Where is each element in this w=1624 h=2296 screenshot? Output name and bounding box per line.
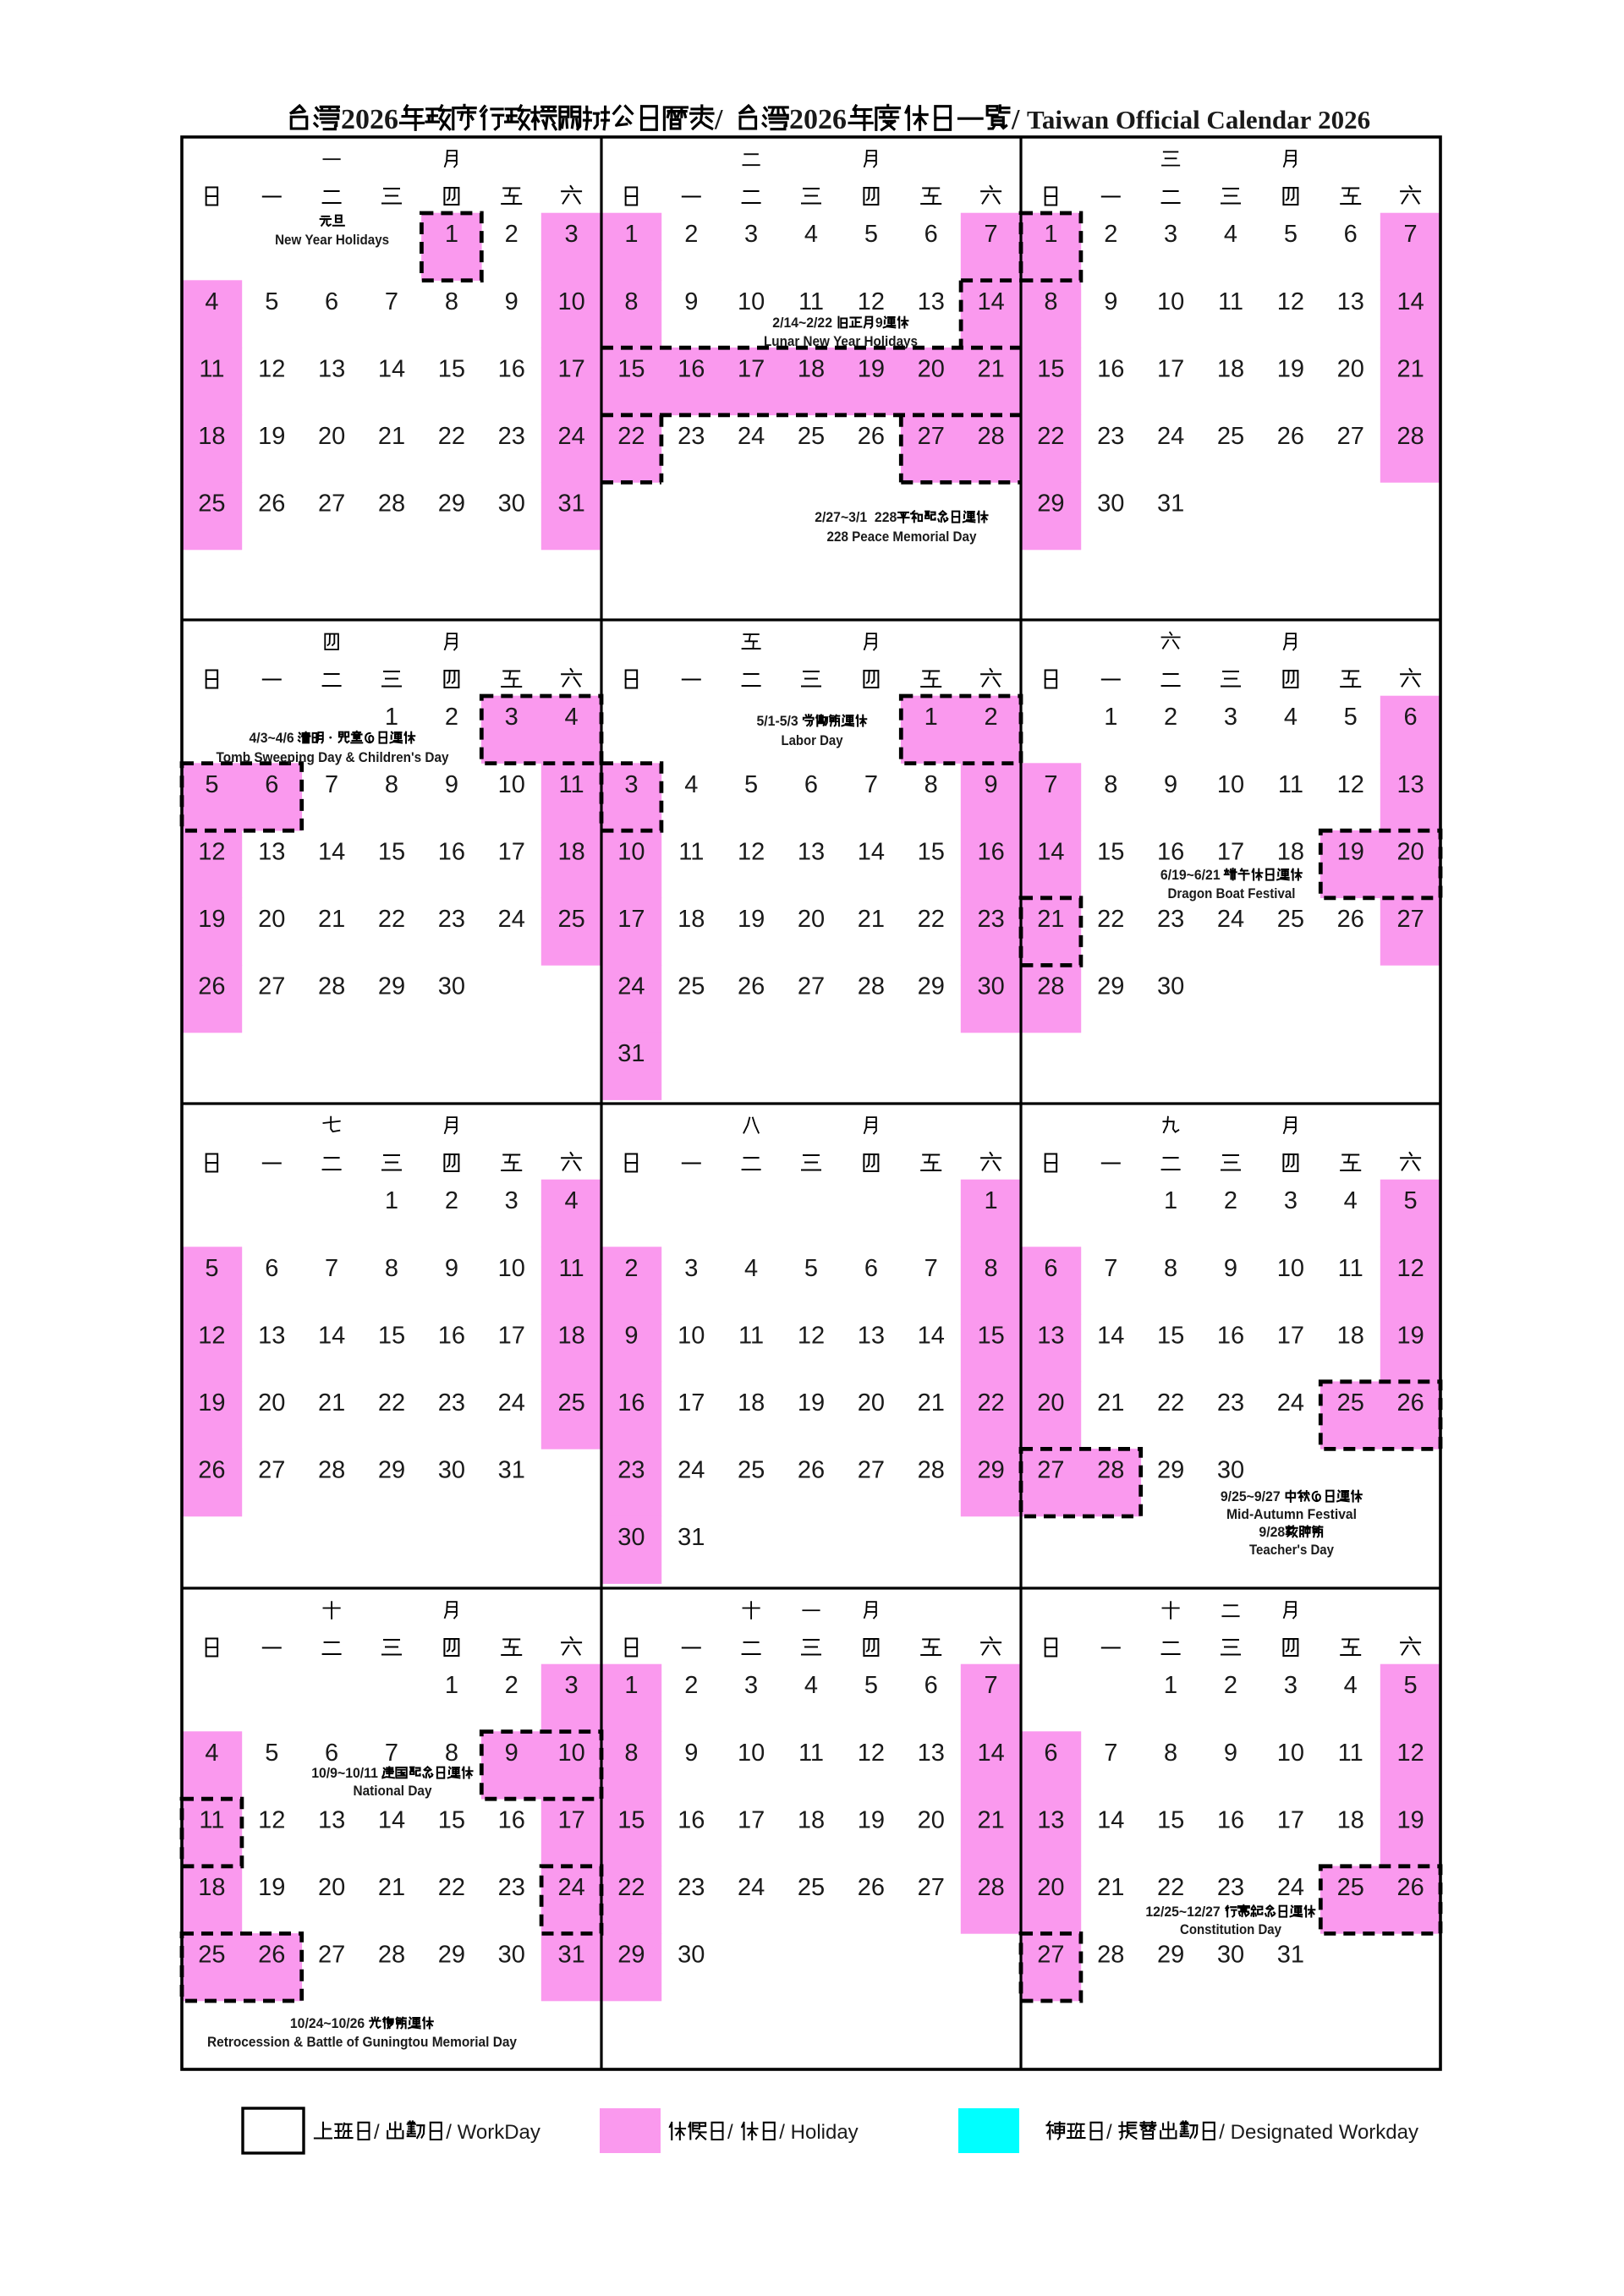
svg-text:28: 28 bbox=[318, 1457, 345, 1484]
svg-text:31: 31 bbox=[1157, 490, 1184, 518]
svg-text:Dragon Boat Festival: Dragon Boat Festival bbox=[1168, 885, 1296, 901]
svg-text:28: 28 bbox=[378, 1942, 405, 1969]
svg-text:/ Holiday: / Holiday bbox=[779, 2121, 858, 2144]
svg-text:24: 24 bbox=[738, 1874, 765, 1901]
svg-text:9: 9 bbox=[624, 1322, 638, 1349]
svg-text:20: 20 bbox=[318, 1874, 345, 1901]
svg-text:17: 17 bbox=[557, 1806, 584, 1833]
svg-text:11: 11 bbox=[738, 1322, 764, 1349]
svg-text:6: 6 bbox=[1344, 221, 1358, 248]
svg-text:13: 13 bbox=[1396, 771, 1424, 798]
svg-text:30: 30 bbox=[438, 1457, 465, 1484]
svg-text:7: 7 bbox=[1104, 1255, 1117, 1282]
svg-text:31: 31 bbox=[557, 490, 584, 518]
svg-text:15: 15 bbox=[378, 1322, 405, 1349]
svg-text:3: 3 bbox=[744, 221, 758, 248]
svg-text:22: 22 bbox=[438, 423, 465, 450]
svg-text:26: 26 bbox=[1277, 423, 1304, 450]
svg-text:2: 2 bbox=[1224, 1672, 1237, 1699]
svg-text:24: 24 bbox=[1277, 1874, 1304, 1901]
svg-text:6/19~6/21: 6/19~6/21 bbox=[1160, 867, 1224, 883]
svg-text:27: 27 bbox=[1337, 423, 1364, 450]
svg-text:25: 25 bbox=[1337, 1389, 1364, 1417]
svg-text:19: 19 bbox=[258, 1874, 285, 1901]
svg-text:25: 25 bbox=[678, 973, 705, 1000]
svg-text:22: 22 bbox=[378, 1389, 405, 1417]
svg-text:12: 12 bbox=[198, 1322, 225, 1349]
svg-text:2: 2 bbox=[505, 221, 518, 248]
svg-text:24: 24 bbox=[1217, 906, 1244, 933]
svg-text:28: 28 bbox=[918, 1457, 945, 1484]
svg-text:20: 20 bbox=[798, 906, 825, 933]
svg-text:2: 2 bbox=[1104, 221, 1117, 248]
svg-text:11: 11 bbox=[199, 1806, 224, 1833]
svg-text:11: 11 bbox=[1218, 288, 1243, 315]
svg-text:17: 17 bbox=[678, 1389, 705, 1417]
svg-text:2: 2 bbox=[684, 1672, 698, 1699]
svg-text:22: 22 bbox=[1097, 906, 1124, 933]
svg-text:9: 9 bbox=[505, 288, 518, 315]
svg-text:/ Designated Workday: / Designated Workday bbox=[1219, 2121, 1418, 2144]
svg-text:22: 22 bbox=[438, 1874, 465, 1901]
svg-text:18: 18 bbox=[1277, 838, 1304, 865]
svg-text:4/3~4/6: 4/3~4/6 bbox=[250, 730, 299, 746]
svg-text:7: 7 bbox=[985, 1672, 998, 1699]
svg-text:21: 21 bbox=[977, 1806, 1004, 1833]
svg-text:26: 26 bbox=[1396, 1389, 1424, 1417]
svg-text:20: 20 bbox=[1337, 355, 1364, 382]
svg-text:6: 6 bbox=[325, 1740, 338, 1767]
svg-text:27: 27 bbox=[858, 1457, 885, 1484]
svg-text:Mid-Autumn Festival: Mid-Autumn Festival bbox=[1226, 1506, 1357, 1522]
svg-text:7: 7 bbox=[985, 221, 998, 248]
svg-text:27: 27 bbox=[1396, 906, 1424, 933]
svg-text:25: 25 bbox=[198, 490, 225, 518]
svg-text:23: 23 bbox=[1097, 423, 1124, 450]
svg-text:21: 21 bbox=[858, 906, 885, 933]
svg-text:26: 26 bbox=[798, 1457, 825, 1484]
svg-text:14: 14 bbox=[378, 355, 405, 382]
svg-text:18: 18 bbox=[678, 906, 705, 933]
svg-text:2: 2 bbox=[624, 1255, 638, 1282]
svg-text:25: 25 bbox=[557, 1389, 584, 1417]
svg-text:9: 9 bbox=[684, 1740, 698, 1767]
svg-text:18: 18 bbox=[198, 1874, 225, 1901]
svg-text:6: 6 bbox=[265, 1255, 278, 1282]
svg-text:29: 29 bbox=[438, 1942, 465, 1969]
svg-text:Labor Day: Labor Day bbox=[782, 732, 843, 748]
svg-text:19: 19 bbox=[258, 423, 285, 450]
svg-text:12: 12 bbox=[1396, 1740, 1424, 1767]
svg-text:5: 5 bbox=[744, 771, 758, 798]
svg-text:8: 8 bbox=[985, 1255, 998, 1282]
svg-text:7: 7 bbox=[325, 771, 338, 798]
svg-text:30: 30 bbox=[1217, 1942, 1244, 1969]
svg-text:10: 10 bbox=[738, 288, 765, 315]
svg-text:26: 26 bbox=[1396, 1874, 1424, 1901]
svg-text:29: 29 bbox=[378, 1457, 405, 1484]
svg-text:6: 6 bbox=[265, 771, 278, 798]
svg-text:12: 12 bbox=[1277, 288, 1304, 315]
svg-text:14: 14 bbox=[1097, 1806, 1124, 1833]
svg-text:5: 5 bbox=[205, 1255, 218, 1282]
svg-text:14: 14 bbox=[918, 1322, 945, 1349]
svg-text:3: 3 bbox=[1284, 1672, 1298, 1699]
svg-text:24: 24 bbox=[1157, 423, 1184, 450]
svg-text:15: 15 bbox=[378, 838, 405, 865]
svg-text:31: 31 bbox=[557, 1942, 584, 1969]
svg-text:4: 4 bbox=[804, 1672, 818, 1699]
svg-text:16: 16 bbox=[438, 838, 465, 865]
svg-text:8: 8 bbox=[445, 288, 458, 315]
svg-text:31: 31 bbox=[1277, 1942, 1304, 1969]
svg-text:11: 11 bbox=[559, 1255, 584, 1282]
svg-text:12: 12 bbox=[858, 1740, 885, 1767]
svg-text:17: 17 bbox=[1277, 1806, 1304, 1833]
svg-text:18: 18 bbox=[738, 1389, 765, 1417]
svg-text:27: 27 bbox=[918, 1874, 945, 1901]
svg-text:1: 1 bbox=[924, 704, 938, 731]
svg-text:1: 1 bbox=[1164, 1187, 1177, 1214]
svg-text:27: 27 bbox=[318, 490, 345, 518]
svg-text:228 Peace Memorial Day: 228 Peace Memorial Day bbox=[827, 529, 977, 545]
svg-text:13: 13 bbox=[858, 1322, 885, 1349]
svg-text:17: 17 bbox=[498, 1322, 525, 1349]
svg-text:24: 24 bbox=[1277, 1389, 1304, 1417]
svg-text:30: 30 bbox=[1157, 973, 1184, 1000]
svg-text:10: 10 bbox=[617, 838, 645, 865]
svg-text:18: 18 bbox=[1337, 1322, 1364, 1349]
svg-text:8: 8 bbox=[1044, 288, 1057, 315]
svg-text:/: / bbox=[1011, 104, 1020, 135]
svg-text:23: 23 bbox=[1217, 1874, 1244, 1901]
svg-text:18: 18 bbox=[198, 423, 225, 450]
svg-text:12: 12 bbox=[198, 838, 225, 865]
svg-text:2: 2 bbox=[445, 704, 458, 731]
svg-text:National Day: National Day bbox=[354, 1783, 432, 1799]
svg-text:28: 28 bbox=[378, 490, 405, 518]
svg-text:27: 27 bbox=[798, 973, 825, 1000]
svg-text:28: 28 bbox=[318, 973, 345, 1000]
svg-text:20: 20 bbox=[918, 1806, 945, 1833]
svg-text:6: 6 bbox=[1044, 1740, 1057, 1767]
svg-text:20: 20 bbox=[1037, 1389, 1064, 1417]
svg-text:31: 31 bbox=[678, 1524, 705, 1551]
svg-text:/: / bbox=[374, 2121, 385, 2144]
svg-text:13: 13 bbox=[918, 288, 945, 315]
svg-text:16: 16 bbox=[678, 355, 705, 382]
svg-text:1: 1 bbox=[385, 704, 398, 731]
svg-text:26: 26 bbox=[858, 423, 885, 450]
svg-text:1: 1 bbox=[624, 221, 638, 248]
svg-text:9: 9 bbox=[1224, 1740, 1237, 1767]
svg-text:13: 13 bbox=[318, 355, 345, 382]
svg-text:9: 9 bbox=[1164, 771, 1177, 798]
svg-text:27: 27 bbox=[918, 423, 945, 450]
svg-text:14: 14 bbox=[858, 838, 885, 865]
svg-text:9: 9 bbox=[875, 315, 883, 331]
svg-text:10: 10 bbox=[498, 1255, 525, 1282]
svg-text:17: 17 bbox=[1277, 1322, 1304, 1349]
svg-text:15: 15 bbox=[977, 1322, 1004, 1349]
svg-text:2: 2 bbox=[1224, 1187, 1237, 1214]
svg-text:3: 3 bbox=[624, 771, 638, 798]
svg-text:7: 7 bbox=[1104, 1740, 1117, 1767]
svg-text:16: 16 bbox=[977, 838, 1004, 865]
svg-text:3: 3 bbox=[505, 1187, 518, 1214]
svg-text:26: 26 bbox=[1337, 906, 1364, 933]
svg-text:28: 28 bbox=[1097, 1942, 1124, 1969]
svg-text:21: 21 bbox=[318, 1389, 345, 1417]
svg-text:18: 18 bbox=[1337, 1806, 1364, 1833]
svg-text:28: 28 bbox=[1037, 973, 1064, 1000]
svg-text:22: 22 bbox=[1037, 423, 1064, 450]
svg-text:15: 15 bbox=[438, 355, 465, 382]
svg-text:23: 23 bbox=[617, 1457, 645, 1484]
svg-text:1: 1 bbox=[445, 1672, 458, 1699]
svg-text:20: 20 bbox=[858, 1389, 885, 1417]
svg-text:30: 30 bbox=[498, 1942, 525, 1969]
svg-text:28: 28 bbox=[1097, 1457, 1124, 1484]
svg-text:1: 1 bbox=[985, 1187, 998, 1214]
svg-text:6: 6 bbox=[1044, 1255, 1057, 1282]
svg-text:8: 8 bbox=[1164, 1740, 1177, 1767]
svg-text:Retrocession & Battle of Gunin: Retrocession & Battle of Guningtou Memor… bbox=[207, 2034, 517, 2050]
svg-text:5: 5 bbox=[864, 1672, 878, 1699]
svg-text:18: 18 bbox=[798, 355, 825, 382]
svg-text:30: 30 bbox=[678, 1942, 705, 1969]
svg-text:14: 14 bbox=[318, 838, 345, 865]
svg-text:6: 6 bbox=[804, 771, 818, 798]
svg-text:19: 19 bbox=[1277, 355, 1304, 382]
svg-text:18: 18 bbox=[557, 838, 584, 865]
svg-text:5: 5 bbox=[1404, 1187, 1418, 1214]
svg-text:9/25~9/27: 9/25~9/27 bbox=[1221, 1488, 1284, 1504]
svg-text:4: 4 bbox=[744, 1255, 758, 1282]
svg-text:30: 30 bbox=[1217, 1457, 1244, 1484]
svg-text:12: 12 bbox=[798, 1322, 825, 1349]
svg-text:9: 9 bbox=[1224, 1255, 1237, 1282]
svg-text:3: 3 bbox=[1164, 221, 1177, 248]
svg-text:14: 14 bbox=[977, 1740, 1004, 1767]
svg-text:27: 27 bbox=[258, 1457, 285, 1484]
svg-text:25: 25 bbox=[798, 1874, 825, 1901]
svg-text:11: 11 bbox=[1278, 771, 1303, 798]
svg-text:18: 18 bbox=[557, 1322, 584, 1349]
svg-text:13: 13 bbox=[798, 838, 825, 865]
svg-text:22: 22 bbox=[617, 1874, 645, 1901]
svg-text:25: 25 bbox=[1217, 423, 1244, 450]
svg-text:25: 25 bbox=[798, 423, 825, 450]
svg-text:31: 31 bbox=[498, 1457, 525, 1484]
svg-text:26: 26 bbox=[198, 973, 225, 1000]
svg-text:29: 29 bbox=[1157, 1942, 1184, 1969]
svg-text:6: 6 bbox=[1404, 704, 1418, 731]
svg-text:1: 1 bbox=[1164, 1672, 1177, 1699]
svg-text:29: 29 bbox=[1037, 490, 1064, 518]
svg-text:24: 24 bbox=[678, 1457, 705, 1484]
svg-text:4: 4 bbox=[565, 704, 579, 731]
svg-text:Constitution Day: Constitution Day bbox=[1180, 1921, 1281, 1937]
svg-text:17: 17 bbox=[1217, 838, 1244, 865]
svg-text:21: 21 bbox=[318, 906, 345, 933]
svg-text:29: 29 bbox=[378, 973, 405, 1000]
svg-text:19: 19 bbox=[198, 1389, 225, 1417]
svg-text:14: 14 bbox=[1396, 288, 1424, 315]
svg-text:19: 19 bbox=[738, 906, 765, 933]
svg-text:14: 14 bbox=[378, 1806, 405, 1833]
svg-text:24: 24 bbox=[498, 1389, 525, 1417]
svg-text:19: 19 bbox=[798, 1389, 825, 1417]
svg-text:26: 26 bbox=[258, 490, 285, 518]
svg-text:23: 23 bbox=[438, 1389, 465, 1417]
svg-text:23: 23 bbox=[498, 423, 525, 450]
svg-text:21: 21 bbox=[977, 355, 1004, 382]
svg-text:14: 14 bbox=[1037, 838, 1064, 865]
svg-text:9: 9 bbox=[445, 1255, 458, 1282]
svg-text:12: 12 bbox=[258, 1806, 285, 1833]
svg-text:30: 30 bbox=[438, 973, 465, 1000]
svg-text:15: 15 bbox=[1037, 355, 1064, 382]
svg-text:8: 8 bbox=[624, 1740, 638, 1767]
svg-text:4: 4 bbox=[684, 771, 698, 798]
svg-text:30: 30 bbox=[617, 1524, 645, 1551]
svg-text:12: 12 bbox=[1337, 771, 1364, 798]
svg-text:7: 7 bbox=[385, 1740, 398, 1767]
svg-text:/: / bbox=[1106, 2121, 1117, 2144]
svg-text:24: 24 bbox=[617, 973, 645, 1000]
svg-text:10: 10 bbox=[678, 1322, 705, 1349]
svg-text:5: 5 bbox=[205, 771, 218, 798]
svg-text:23: 23 bbox=[1217, 1389, 1244, 1417]
svg-text:17: 17 bbox=[738, 355, 765, 382]
svg-text:27: 27 bbox=[258, 973, 285, 1000]
svg-text:10: 10 bbox=[1157, 288, 1184, 315]
svg-text:13: 13 bbox=[1337, 288, 1364, 315]
svg-text:26: 26 bbox=[258, 1942, 285, 1969]
svg-text:17: 17 bbox=[1157, 355, 1184, 382]
svg-text:15: 15 bbox=[1157, 1806, 1184, 1833]
svg-text:25: 25 bbox=[198, 1942, 225, 1969]
svg-text:23: 23 bbox=[678, 423, 705, 450]
svg-text:5: 5 bbox=[1284, 221, 1298, 248]
svg-text:11: 11 bbox=[678, 838, 704, 865]
svg-text:9: 9 bbox=[684, 288, 698, 315]
svg-text:20: 20 bbox=[918, 355, 945, 382]
svg-text:/: / bbox=[714, 104, 723, 135]
svg-text:2: 2 bbox=[445, 1187, 458, 1214]
svg-text:28: 28 bbox=[858, 973, 885, 1000]
svg-text:9: 9 bbox=[505, 1740, 518, 1767]
svg-text:15: 15 bbox=[1097, 838, 1124, 865]
svg-text:24: 24 bbox=[557, 1874, 584, 1901]
svg-text:2: 2 bbox=[684, 221, 698, 248]
svg-text:16: 16 bbox=[1217, 1322, 1244, 1349]
svg-text:16: 16 bbox=[438, 1322, 465, 1349]
svg-text:3: 3 bbox=[505, 704, 518, 731]
svg-text:29: 29 bbox=[918, 973, 945, 1000]
svg-text:5: 5 bbox=[804, 1255, 818, 1282]
svg-text:15: 15 bbox=[617, 1806, 645, 1833]
svg-text:3: 3 bbox=[684, 1255, 698, 1282]
svg-text:15: 15 bbox=[918, 838, 945, 865]
svg-text:22: 22 bbox=[1157, 1389, 1184, 1417]
svg-text:16: 16 bbox=[1157, 838, 1184, 865]
svg-text:5: 5 bbox=[864, 221, 878, 248]
svg-text:10: 10 bbox=[557, 1740, 584, 1767]
svg-text:10: 10 bbox=[1277, 1255, 1304, 1282]
svg-text:20: 20 bbox=[1037, 1874, 1064, 1901]
svg-text:27: 27 bbox=[1037, 1942, 1064, 1969]
svg-text:27: 27 bbox=[1037, 1457, 1064, 1484]
svg-text:6: 6 bbox=[924, 1672, 938, 1699]
svg-text:12/25~12/27: 12/25~12/27 bbox=[1145, 1904, 1224, 1920]
svg-text:23: 23 bbox=[498, 1874, 525, 1901]
svg-text:17: 17 bbox=[498, 838, 525, 865]
svg-text:2: 2 bbox=[505, 1672, 518, 1699]
svg-text:13: 13 bbox=[318, 1806, 345, 1833]
svg-text:22: 22 bbox=[378, 906, 405, 933]
svg-text:Teacher's Day: Teacher's Day bbox=[1249, 1542, 1334, 1558]
svg-text:18: 18 bbox=[1217, 355, 1244, 382]
svg-text:19: 19 bbox=[858, 1806, 885, 1833]
svg-text:21: 21 bbox=[918, 1389, 945, 1417]
svg-text:16: 16 bbox=[1217, 1806, 1244, 1833]
svg-text:26: 26 bbox=[198, 1457, 225, 1484]
svg-text:19: 19 bbox=[1396, 1806, 1424, 1833]
svg-text:3: 3 bbox=[1224, 704, 1237, 731]
svg-text:13: 13 bbox=[258, 1322, 285, 1349]
svg-text:17: 17 bbox=[738, 1806, 765, 1833]
svg-text:25: 25 bbox=[557, 906, 584, 933]
svg-text:8: 8 bbox=[924, 771, 938, 798]
svg-text:25: 25 bbox=[1337, 1874, 1364, 1901]
svg-text:24: 24 bbox=[498, 906, 525, 933]
svg-text:10/24~10/26: 10/24~10/26 bbox=[290, 2015, 369, 2031]
svg-text:27: 27 bbox=[318, 1942, 345, 1969]
svg-text:12: 12 bbox=[858, 288, 885, 315]
svg-text:4: 4 bbox=[1284, 704, 1298, 731]
svg-text:3: 3 bbox=[744, 1672, 758, 1699]
svg-text:9: 9 bbox=[1104, 288, 1117, 315]
svg-text:16: 16 bbox=[617, 1389, 645, 1417]
svg-text:5: 5 bbox=[265, 288, 278, 315]
svg-text:8: 8 bbox=[385, 771, 398, 798]
svg-text:21: 21 bbox=[378, 423, 405, 450]
svg-text:6: 6 bbox=[924, 221, 938, 248]
svg-text:28: 28 bbox=[977, 1874, 1004, 1901]
svg-text:23: 23 bbox=[977, 906, 1004, 933]
svg-text:10/9~10/11: 10/9~10/11 bbox=[311, 1765, 381, 1781]
svg-text:8: 8 bbox=[624, 288, 638, 315]
svg-text:26: 26 bbox=[738, 973, 765, 1000]
svg-text:17: 17 bbox=[557, 355, 584, 382]
svg-text:1: 1 bbox=[385, 1187, 398, 1214]
svg-text:16: 16 bbox=[498, 355, 525, 382]
svg-text:4: 4 bbox=[205, 288, 218, 315]
svg-text:2: 2 bbox=[1164, 704, 1177, 731]
svg-text:15: 15 bbox=[1157, 1322, 1184, 1349]
svg-text:11: 11 bbox=[1338, 1255, 1363, 1282]
svg-text:4: 4 bbox=[205, 1740, 218, 1767]
svg-text:21: 21 bbox=[1097, 1874, 1124, 1901]
svg-text:20: 20 bbox=[258, 906, 285, 933]
svg-text:5/1-5/3: 5/1-5/3 bbox=[757, 713, 803, 729]
svg-text:10: 10 bbox=[498, 771, 525, 798]
svg-text:7: 7 bbox=[385, 288, 398, 315]
svg-text:4: 4 bbox=[1344, 1187, 1358, 1214]
svg-text:30: 30 bbox=[977, 973, 1004, 1000]
